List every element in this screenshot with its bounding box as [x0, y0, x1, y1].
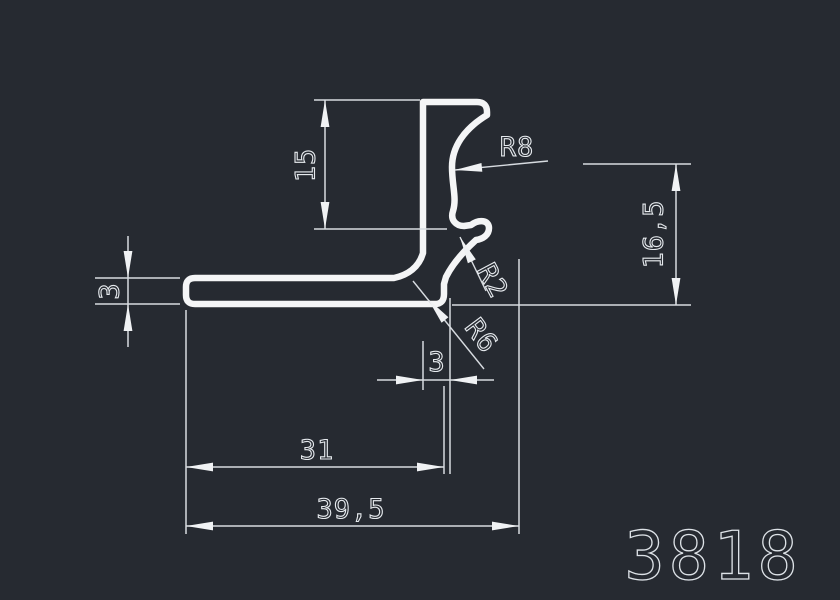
dim-text-39-5: 39,5 [316, 494, 385, 525]
dim-text-3-bottom: 3 [428, 347, 445, 378]
cad-viewport[interactable]: 15 R8 16,5 3 R2 R6 [0, 0, 840, 600]
drawing-canvas: 15 R8 16,5 3 R2 R6 [0, 0, 840, 600]
dim-text-15: 15 [291, 148, 322, 183]
dim-text-16-5: 16,5 [639, 199, 670, 268]
dim-text-3-left: 3 [95, 282, 126, 299]
dim-text-31: 31 [300, 435, 335, 466]
dim-text-r8: R8 [500, 132, 535, 163]
part-number: 3818 [624, 517, 801, 595]
canvas-background [0, 0, 840, 600]
